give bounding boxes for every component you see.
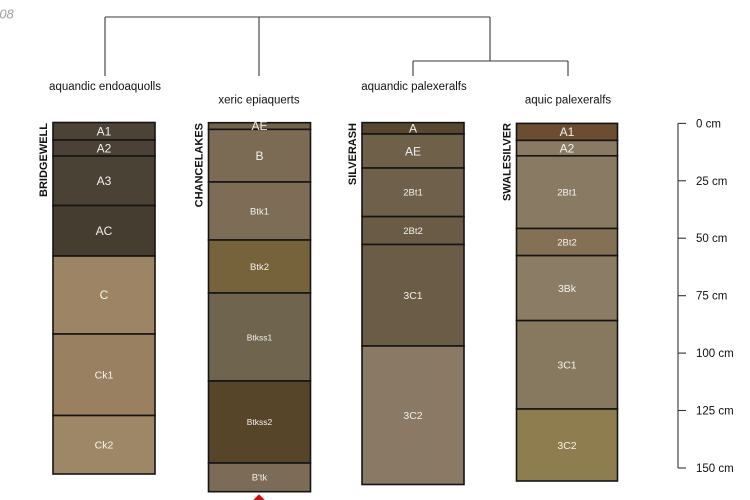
svg-text:3C2: 3C2 <box>557 440 576 452</box>
svg-text:A1: A1 <box>97 125 112 139</box>
svg-text:3C1: 3C1 <box>403 290 422 302</box>
svg-text:xeric epiaquerts: xeric epiaquerts <box>218 95 299 107</box>
svg-text:aquandic endoaquolls: aquandic endoaquolls <box>49 81 161 93</box>
svg-text:Btkss2: Btkss2 <box>247 417 273 427</box>
svg-text:2Bt1: 2Bt1 <box>557 188 577 199</box>
svg-text:25 cm: 25 cm <box>696 176 727 188</box>
svg-text:BRIDGEWELL: BRIDGEWELL <box>38 123 50 197</box>
svg-text:3C2: 3C2 <box>403 410 422 422</box>
svg-text:B'tk: B'tk <box>252 473 268 484</box>
svg-text:aquandic palexeralfs: aquandic palexeralfs <box>361 81 467 93</box>
svg-text:A3: A3 <box>97 174 112 188</box>
svg-text:2Bt2: 2Bt2 <box>557 238 577 249</box>
svg-text:Ck2: Ck2 <box>95 440 114 452</box>
svg-text:Btkss1: Btkss1 <box>247 333 273 343</box>
svg-text:AC: AC <box>96 224 113 238</box>
svg-text:125 cm: 125 cm <box>696 406 734 418</box>
svg-text:B: B <box>255 149 263 163</box>
svg-text:SWALESILVER: SWALESILVER <box>502 123 514 201</box>
svg-text:Ck1: Ck1 <box>95 370 114 382</box>
svg-text:2Bt1: 2Bt1 <box>403 188 423 199</box>
svg-text:SILVERASH: SILVERASH <box>347 123 359 185</box>
svg-text:75 cm: 75 cm <box>696 291 727 303</box>
svg-text:CHANCELAKES: CHANCELAKES <box>194 123 206 207</box>
svg-text:0 cm: 0 cm <box>696 118 721 130</box>
svg-text:A: A <box>409 121 417 135</box>
svg-text:C: C <box>100 288 109 302</box>
svg-text:A2: A2 <box>97 141 112 155</box>
svg-text:A2: A2 <box>560 141 575 155</box>
svg-text:AE: AE <box>405 144 421 158</box>
svg-text:A1: A1 <box>560 125 575 139</box>
svg-text:3C1: 3C1 <box>557 360 576 372</box>
svg-text:Btk1: Btk1 <box>250 207 269 218</box>
svg-text:Btk2: Btk2 <box>250 262 269 273</box>
svg-text:aquic palexeralfs: aquic palexeralfs <box>525 95 612 107</box>
svg-text:2Bt2: 2Bt2 <box>403 226 423 237</box>
svg-text:-08: -08 <box>0 7 15 22</box>
svg-text:3Bk: 3Bk <box>558 283 577 295</box>
svg-text:50 cm: 50 cm <box>696 233 727 245</box>
svg-text:100 cm: 100 cm <box>696 348 734 360</box>
svg-text:150 cm: 150 cm <box>696 463 734 475</box>
svg-text:AE: AE <box>251 119 267 133</box>
